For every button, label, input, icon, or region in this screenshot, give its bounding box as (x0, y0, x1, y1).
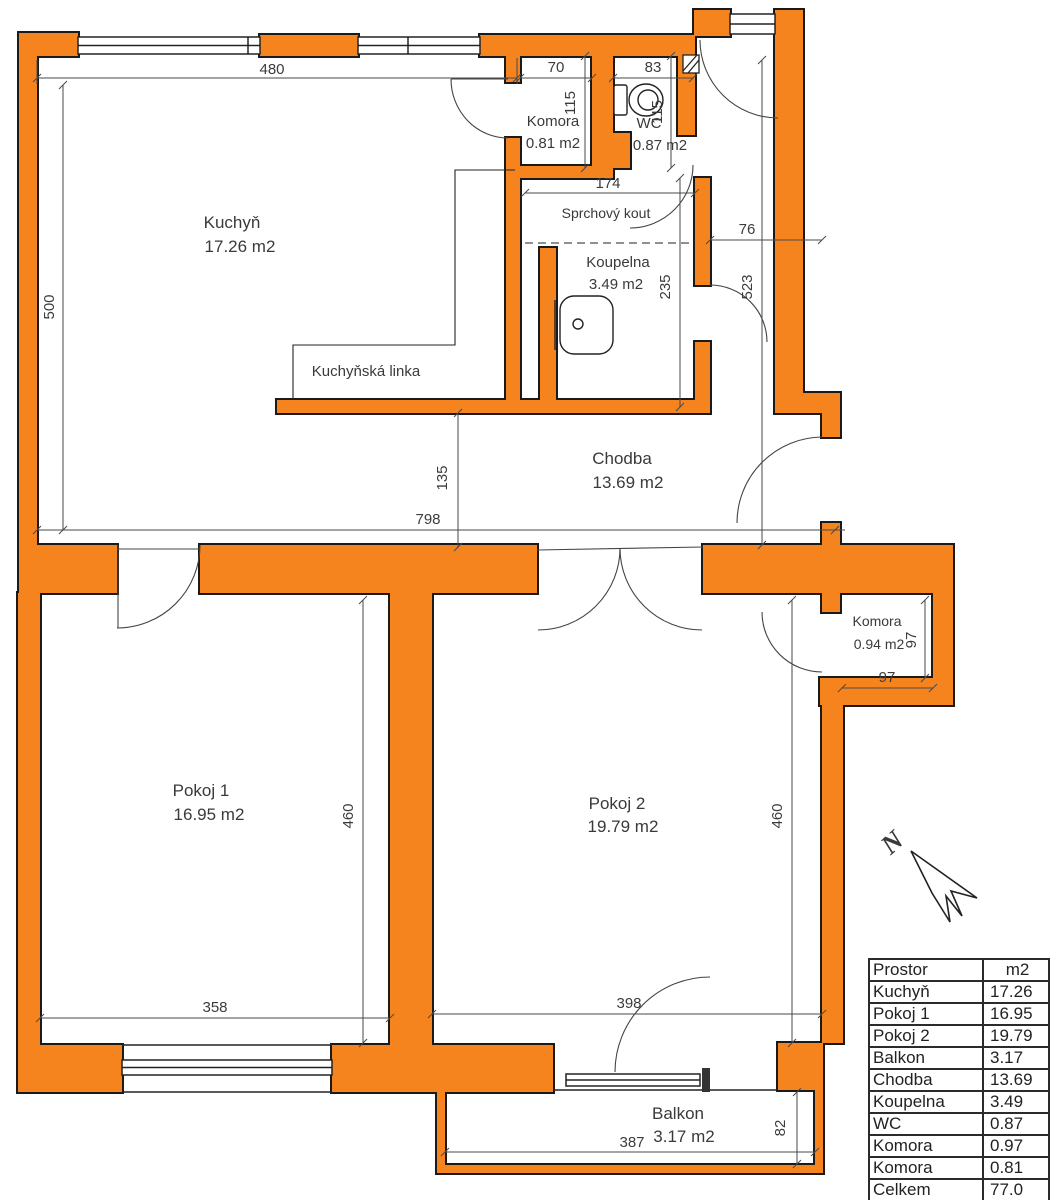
room-area-pokoj2: 19.79 m2 (588, 817, 659, 836)
room-label-wc: WC (637, 115, 662, 132)
table-row: Celkem 77.0 (869, 1179, 1049, 1200)
table-cell-name: Koupelna (869, 1091, 983, 1113)
dim-pokoj2-depth: 460 (769, 803, 786, 828)
dim-balkon-width: 387 (619, 1134, 644, 1151)
room-label-koupelna: Koupelna (586, 254, 650, 271)
room-area-koupelna: 3.49 m2 (589, 276, 643, 293)
dim-balkon-depth: 82 (772, 1120, 789, 1137)
entry-door-hatch (683, 55, 699, 73)
table-row: Komora 0.97 (869, 1135, 1049, 1157)
sink-icon (555, 296, 613, 354)
dim-pokoj1-width: 358 (202, 999, 227, 1016)
table-header-prostor: Prostor (869, 959, 983, 981)
dim-wc-width: 83 (645, 59, 662, 76)
table-cell-area: 19.79 (983, 1025, 1049, 1047)
room-area-komora-top: 0.81 m2 (526, 135, 580, 152)
label-kuchynska-linka: Kuchyňská linka (312, 363, 421, 380)
table-cell-area: 16.95 (983, 1003, 1049, 1025)
dim-pokoj1-depth: 460 (340, 803, 357, 828)
room-label-pokoj2: Pokoj 2 (589, 794, 646, 813)
north-arrow-icon (911, 851, 977, 922)
table-cell-name: Komora (869, 1135, 983, 1157)
table-row: Kuchyň 17.26 (869, 981, 1049, 1003)
komora-top-door-arc (451, 79, 508, 138)
room-label-chodba: Chodba (592, 449, 652, 468)
table-header-m2: m2 (983, 959, 1049, 981)
table-row: WC 0.87 (869, 1113, 1049, 1135)
room-label-komora-top: Komora (527, 113, 580, 130)
table-cell-area: 13.69 (983, 1069, 1049, 1091)
room-label-komora-lower: Komora (852, 613, 901, 629)
kitchen-window-right (358, 37, 480, 54)
table-cell-area: 0.87 (983, 1113, 1049, 1135)
room-area-balkon: 3.17 m2 (653, 1127, 714, 1146)
table-cell-area: 17.26 (983, 981, 1049, 1003)
dim-kuchyn-width: 480 (259, 61, 284, 78)
table-cell-name: Pokoj 1 (869, 1003, 983, 1025)
dim-sprcha-width: 174 (595, 175, 620, 192)
kitchen-window-left (78, 37, 260, 54)
dim-komora2-depth: 97 (903, 632, 920, 649)
table-row: Balkon 3.17 (869, 1047, 1049, 1069)
table-cell-name: Pokoj 2 (869, 1025, 983, 1047)
table-row: Pokoj 2 19.79 (869, 1025, 1049, 1047)
floor-plan-page: 480 70 83 115 115 174 76 235 523 500 135… (0, 0, 1054, 1200)
room-area-chodba: 13.69 m2 (593, 473, 664, 492)
table-row: Chodba 13.69 (869, 1069, 1049, 1091)
table-cell-name: Celkem (869, 1179, 983, 1200)
balcony-door-leaf (702, 1068, 710, 1092)
room-area-komora-lower: 0.94 m2 (854, 636, 905, 652)
table-cell-name: Kuchyň (869, 981, 983, 1003)
dim-kuchyn-depth: 500 (41, 294, 58, 319)
area-table: Prostor m2 Kuchyň 17.26 Pokoj 1 16.95 Po… (868, 958, 1050, 1200)
room-area-pokoj1: 16.95 m2 (174, 805, 245, 824)
table-row: Pokoj 1 16.95 (869, 1003, 1049, 1025)
dim-chodba-width: 76 (739, 221, 756, 238)
room-area-wc: 0.87 m2 (633, 137, 687, 154)
entry-door-arc (700, 40, 778, 118)
dim-chodba-135: 135 (434, 465, 451, 490)
room-label-pokoj1: Pokoj 1 (173, 781, 230, 800)
table-cell-name: Komora (869, 1157, 983, 1179)
pokoj1-door-arc (117, 545, 200, 628)
entry-sidelight-window (730, 14, 775, 34)
table-header-row: Prostor m2 (869, 959, 1049, 981)
dim-komora-depth: 115 (562, 91, 579, 115)
table-row: Koupelna 3.49 (869, 1091, 1049, 1113)
table-row: Komora 0.81 (869, 1157, 1049, 1179)
dim-komora2-width: 97 (879, 669, 896, 686)
balcony-door-arc (615, 977, 710, 1072)
fixtures (293, 84, 695, 400)
room-area-kuchyn: 17.26 m2 (205, 237, 276, 256)
room-label-balkon: Balkon (652, 1104, 704, 1123)
table-cell-name: Balkon (869, 1047, 983, 1069)
room-label-kuchyn: Kuchyň (204, 213, 261, 232)
north-label: N (874, 824, 910, 861)
dim-chodba-depth: 523 (739, 274, 756, 299)
pokoj1-window (122, 1045, 332, 1092)
table-cell-name: Chodba (869, 1069, 983, 1091)
dim-pokoj2-width: 398 (616, 995, 641, 1012)
table-cell-area: 0.81 (983, 1157, 1049, 1179)
dim-koupelna-depth: 235 (657, 274, 674, 299)
walls (18, 10, 953, 1173)
dim-komora-width: 70 (548, 59, 565, 76)
table-cell-area: 0.97 (983, 1135, 1049, 1157)
balcony-window (553, 1074, 778, 1090)
pokoj2-double-door-arcs (538, 548, 702, 630)
table-cell-name: WC (869, 1113, 983, 1135)
table-cell-area: 77.0 (983, 1179, 1049, 1200)
table-cell-area: 3.49 (983, 1091, 1049, 1113)
chodba-right-door-arc (737, 437, 822, 523)
table-cell-area: 3.17 (983, 1047, 1049, 1069)
label-sprchovy-kout: Sprchový kout (562, 205, 651, 221)
north-arrow: N (874, 824, 977, 922)
dim-celek-width: 798 (415, 511, 440, 528)
